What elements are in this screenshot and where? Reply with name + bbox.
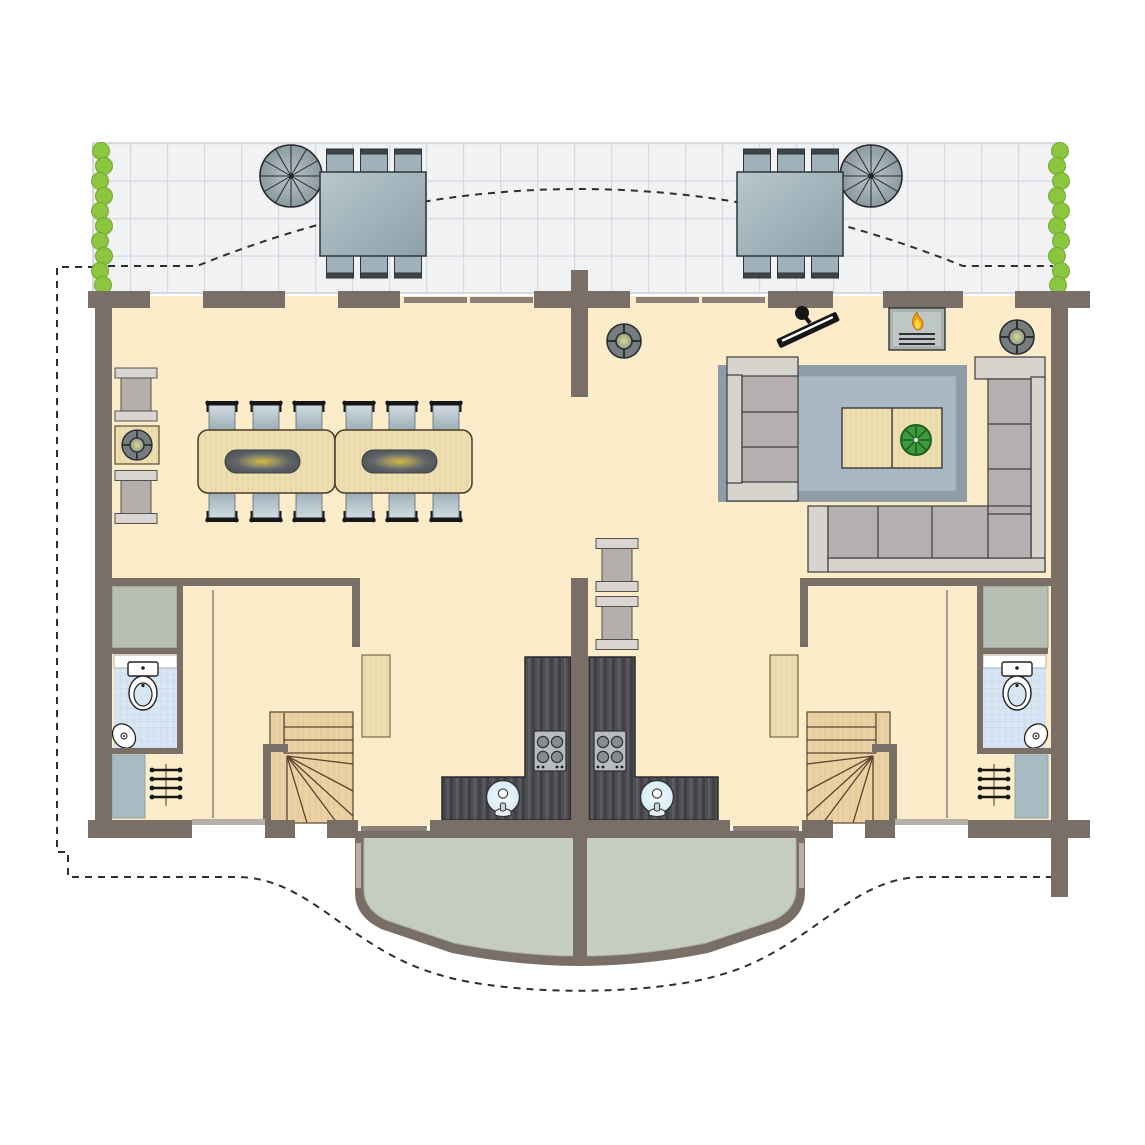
- bay-side-window: [799, 843, 804, 888]
- dining-chair: [429, 493, 462, 522]
- dining-chair: [385, 401, 418, 430]
- party-wall-lower: [571, 578, 588, 820]
- bathroom-wall: [977, 648, 1048, 654]
- toilet-icon: [128, 662, 158, 710]
- winder-staircase: [807, 712, 890, 823]
- window: [192, 819, 265, 825]
- dining-chair: [249, 401, 282, 430]
- partition-wall: [352, 586, 360, 647]
- bathroom-wall: [977, 586, 983, 754]
- outdoor-table: [320, 172, 426, 256]
- three-seat-sofa: [727, 357, 798, 501]
- plant-icon: [901, 425, 931, 455]
- dining-chair: [249, 493, 282, 522]
- party-wall-upper: [571, 270, 588, 397]
- dining-chair: [292, 401, 325, 430]
- bathroom-wall: [977, 748, 1051, 754]
- sliding-door: [404, 297, 467, 303]
- outdoor-table: [737, 172, 843, 256]
- wall-segment: [968, 820, 1090, 838]
- window: [895, 819, 968, 825]
- bay-opening: [730, 820, 802, 826]
- floor-plan-drawing: [0, 0, 1145, 1145]
- sliding-door: [470, 297, 533, 303]
- stair-wall: [263, 752, 271, 823]
- storage-cabinet: [596, 597, 638, 650]
- bathroom-wall: [95, 748, 183, 754]
- storage-cabinet: [596, 539, 638, 592]
- sliding-door: [636, 297, 699, 303]
- ceiling-fan-icon: [1000, 320, 1034, 354]
- dining-chair: [205, 401, 238, 430]
- side-table-with-fan: [115, 426, 159, 464]
- dining-chair: [205, 493, 238, 522]
- floor-plan-page: [0, 0, 1145, 1145]
- bay-balcony: [355, 831, 805, 966]
- wardrobe-panel: [362, 655, 390, 737]
- partition-wall: [800, 586, 808, 647]
- wall-segment: [768, 291, 833, 308]
- stair-wall: [889, 752, 897, 823]
- wall-segment: [88, 820, 192, 838]
- outdoor-dining-set-right: [737, 149, 843, 278]
- wall-segment: [730, 831, 802, 838]
- fireplace: [889, 308, 945, 350]
- wall-segment: [327, 820, 358, 838]
- exterior-wall-left: [95, 293, 112, 838]
- bay-opening: [358, 820, 430, 826]
- wall-segment: [358, 831, 430, 838]
- fan-icon: [122, 430, 152, 460]
- bathroom-wall: [177, 586, 183, 754]
- sliding-door: [702, 297, 765, 303]
- table-runner: [225, 450, 300, 473]
- coffee-table: [842, 408, 942, 468]
- sideboard: [115, 368, 157, 421]
- winder-staircase: [270, 712, 353, 823]
- sideboard: [115, 471, 157, 524]
- closet: [112, 755, 145, 818]
- stair-wall: [263, 744, 288, 752]
- bathroom-wall: [112, 648, 183, 654]
- bay-side-window: [356, 843, 361, 888]
- ceiling-fan-icon: [607, 324, 641, 358]
- hob-icon: [594, 731, 626, 771]
- outdoor-dining-set-left: [320, 149, 426, 278]
- partition-wall: [95, 578, 360, 586]
- bay-divider-wall: [573, 831, 587, 962]
- closet: [112, 586, 177, 648]
- dining-chair: [385, 493, 418, 522]
- exterior-wall-right: [1051, 293, 1068, 838]
- bay-sliding-door: [361, 826, 427, 831]
- table-runner: [362, 450, 437, 473]
- wall-segment: [203, 291, 285, 308]
- dining-chair: [342, 493, 375, 522]
- toilet-icon: [1002, 662, 1032, 710]
- wall-segment: [883, 291, 963, 308]
- hob-icon: [534, 731, 566, 771]
- spiral-staircase-icon: [840, 145, 902, 207]
- closet: [983, 586, 1048, 648]
- wardrobe-panel: [770, 655, 798, 737]
- spiral-staircase-icon: [260, 145, 322, 207]
- wall-segment: [338, 291, 400, 308]
- wall-segment: [430, 820, 730, 838]
- dining-chair: [342, 401, 375, 430]
- stair-wall: [872, 744, 897, 752]
- dining-chair: [429, 401, 462, 430]
- bay-sliding-door: [733, 826, 799, 831]
- partition-wall: [800, 578, 1051, 586]
- closet: [1015, 755, 1048, 818]
- wall-segment: [802, 820, 833, 838]
- dining-chair: [292, 493, 325, 522]
- wall-segment: [1051, 838, 1068, 897]
